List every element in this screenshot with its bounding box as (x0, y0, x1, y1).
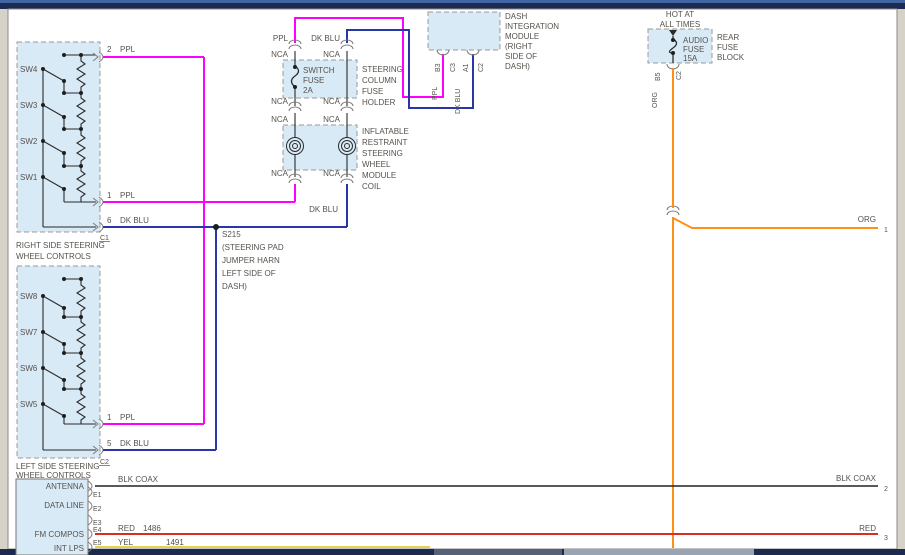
fuse-name: 2A (303, 86, 313, 95)
splice-id: S215 (222, 230, 241, 239)
splice-caption: (STEERING PAD (222, 243, 284, 252)
wire-label-dkblu: DK BLU (120, 216, 149, 225)
circuit-number: 1486 (143, 524, 161, 533)
wire-label-nca: NCA (271, 115, 289, 124)
wire-label-nca: NCA (271, 97, 289, 106)
scrollbar-thumb-2[interactable] (564, 549, 754, 555)
title-bar (0, 3, 905, 9)
wire-label-red: RED (118, 524, 135, 533)
switch-label: SW2 (20, 137, 38, 146)
component-caption: MODULE (505, 32, 539, 41)
pin-number: C3 (450, 63, 457, 72)
pin-number: A1 (463, 63, 470, 72)
wire-label-nca: NCA (271, 169, 289, 178)
component-caption: MODULE (362, 171, 396, 180)
wire-label-dkblu: DK BLU (309, 205, 338, 214)
wire-label-org: ORG (652, 92, 659, 108)
radio-row-label: ANTENNA (46, 482, 85, 491)
wire-label-org: ORG (858, 215, 876, 224)
switch-label: SW7 (20, 328, 38, 337)
fuse-name: SWITCH (303, 66, 335, 75)
power-source-label: HOT AT (666, 10, 694, 19)
wire-label-ppl: PPL (432, 87, 439, 100)
switch-label: SW4 (20, 65, 38, 74)
pin-number: 1 (107, 191, 112, 200)
fuse-name: FUSE (683, 45, 704, 54)
pin-number: E5 (93, 540, 102, 547)
component-caption: STEERING (362, 149, 403, 158)
pin-number: 5 (107, 439, 112, 448)
splice-caption: JUMPER HARN (222, 256, 280, 265)
wire-label-ppl: PPL (120, 45, 136, 54)
switch-label: SW6 (20, 364, 38, 373)
wire-label-dkblu: DK BLU (455, 89, 462, 114)
radio-row-label: FM COMPOS (35, 530, 84, 539)
component-caption: DASH) (505, 62, 530, 71)
pin-number: C2 (478, 63, 485, 72)
pin-number: E3 (93, 520, 102, 527)
wire-label-ppl: PPL (273, 34, 289, 43)
component-caption: FUSE (717, 43, 738, 52)
pin-number: 2 (107, 45, 112, 54)
wire-label-red: RED (859, 524, 876, 533)
component-caption: SIDE OF (505, 52, 537, 61)
component-caption: FUSE (362, 87, 383, 96)
splice-caption: DASH) (222, 282, 247, 291)
component-caption: (RIGHT (505, 42, 533, 51)
wire-label-coax: BLK COAX (836, 474, 877, 483)
pin-number: B3 (435, 63, 442, 72)
pin-number: B5 (655, 72, 662, 81)
switch-label: SW5 (20, 400, 38, 409)
component-caption: WHEEL CONTROLS (16, 252, 91, 261)
wire-label-dkblu: DK BLU (311, 34, 340, 43)
wire-label-dkblu: DK BLU (120, 439, 149, 448)
fuse-name: AUDIO (683, 36, 708, 45)
switch-label: SW8 (20, 292, 38, 301)
wire-label-nca: NCA (323, 50, 341, 59)
component-caption: INTEGRATION (505, 22, 559, 31)
wiring-diagram-viewer: SW4 SW3 SW2 SW1 2 PPL 1 PPL 6 DK BLU C1 … (0, 0, 905, 555)
terminal-number: 1 (884, 227, 888, 234)
wire-label-ppl: PPL (120, 191, 136, 200)
splice-caption: LEFT SIDE OF (222, 269, 276, 278)
component-caption: WHEEL (362, 160, 391, 169)
radio-row-label: INT LPS (54, 544, 84, 553)
wire-label-ppl: PPL (120, 413, 136, 422)
diagram-canvas (8, 9, 897, 549)
wire-label-nca: NCA (271, 50, 289, 59)
component-caption: DASH (505, 12, 527, 21)
wire-label-nca: NCA (323, 169, 341, 178)
wire-label-nca: NCA (323, 115, 341, 124)
pin-number: 1 (107, 413, 112, 422)
component-caption: BLOCK (717, 53, 745, 62)
component-caption: RIGHT SIDE STEERING (16, 241, 105, 250)
component-caption: STEERING (362, 65, 403, 74)
fuse-name: FUSE (303, 76, 324, 85)
component-caption: COIL (362, 182, 381, 191)
title-bar-highlight (0, 0, 905, 3)
pin-number: C2 (676, 71, 683, 80)
pin-number: 6 (107, 216, 112, 225)
pin-number: E1 (93, 492, 102, 499)
connector-id: C2 (100, 459, 109, 466)
circuit-number: 1491 (166, 538, 184, 547)
switch-label: SW3 (20, 101, 38, 110)
component-caption: REAR (717, 33, 739, 42)
component-caption: RESTRAINT (362, 138, 407, 147)
wire-label-yel: YEL (118, 538, 134, 547)
component-caption: HOLDER (362, 98, 396, 107)
terminal-number: 3 (884, 535, 888, 542)
scrollbar-thumb[interactable] (434, 549, 562, 555)
pin-number: E4 (93, 527, 102, 534)
radio-row-label: DATA LINE (44, 501, 84, 510)
component-caption: LEFT SIDE STEERING (16, 462, 99, 471)
splice-dot (213, 224, 219, 230)
wire-label-coax: BLK COAX (118, 475, 159, 484)
component-caption: INFLATABLE (362, 127, 409, 136)
terminal-number: 2 (884, 486, 888, 493)
wiring-diagram: SW4 SW3 SW2 SW1 2 PPL 1 PPL 6 DK BLU C1 … (0, 0, 905, 555)
power-source-label: ALL TIMES (660, 20, 700, 29)
switch-label: SW1 (20, 173, 38, 182)
pin-number: E2 (93, 506, 102, 513)
wire-label-nca: NCA (323, 97, 341, 106)
component-caption: COLUMN (362, 76, 397, 85)
fuse-name: 15A (683, 54, 698, 63)
